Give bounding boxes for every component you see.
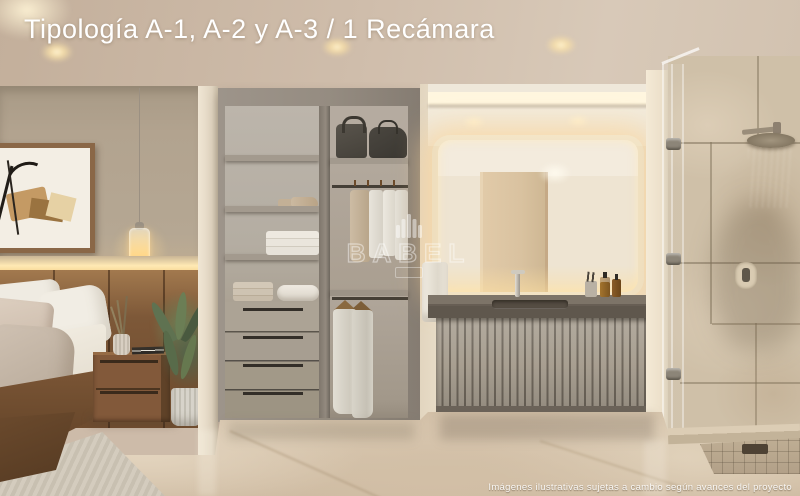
pillar (198, 86, 218, 458)
babel-watermark: BABEL (344, 214, 474, 274)
bath-spotlight-1 (462, 115, 486, 129)
shower-valve-lever (742, 268, 750, 282)
faucet (515, 273, 520, 297)
water-mist (748, 148, 792, 208)
soap-bottle-2 (612, 279, 621, 297)
shower-drain (742, 444, 768, 454)
sink-basin (492, 300, 568, 309)
disclaimer-text: Imágenes ilustrativas sujetas a cambio s… (488, 482, 792, 493)
hanging-robe-white-2 (352, 310, 373, 418)
towel-stack (266, 231, 319, 255)
closet-shelf-1 (225, 155, 319, 161)
soap-bottle-1 (600, 277, 610, 297)
vase (113, 334, 130, 355)
drawer-handle-2 (243, 336, 303, 339)
rain-shower-head (747, 133, 795, 148)
watermark-brand-text: BABEL (344, 240, 474, 266)
sandals-pair (291, 197, 318, 206)
rolled-robe (277, 285, 319, 301)
tile-grout-h4 (680, 382, 800, 384)
floor-reflection-closet (228, 422, 414, 440)
closet-center-divider (319, 106, 330, 418)
floor-reflection-pillar (198, 430, 216, 496)
glass-hinge-1 (666, 138, 681, 150)
bath-spotlight-2 (566, 114, 590, 128)
ceiling-spotlight-3 (540, 32, 582, 58)
glass-hinge-3 (666, 368, 681, 380)
glass-hinge-2 (666, 253, 681, 265)
floor-reflection-vanity (440, 414, 654, 440)
vanity-slat-front (436, 318, 658, 410)
vanity-bottom-edge (436, 406, 658, 413)
toothbrushes (586, 272, 595, 283)
hanger-hooks-upper (354, 180, 404, 186)
nightstand-handle-top (100, 360, 158, 363)
drawer-handle-4 (243, 392, 303, 395)
watermark-badge (395, 267, 423, 278)
hanging-rod-lower (332, 297, 408, 300)
toothbrush-cup (585, 281, 597, 297)
nightstand-drawer-seam (96, 388, 160, 390)
faucet-spout (511, 270, 525, 274)
duffel-handle (378, 120, 398, 134)
closet-drawers (225, 302, 319, 418)
nightstand-handle-bottom (100, 391, 158, 394)
soffit-shadow-line (428, 104, 654, 108)
closet-shelf-2 (225, 206, 319, 212)
handbag-handle (342, 116, 366, 133)
drawer-handle-3 (243, 364, 303, 367)
folded-clothes-stack (233, 282, 273, 301)
page-title: Tipología A-1, A-2 y A-3 / 1 Recámara (24, 14, 495, 45)
pendant-cord (139, 88, 140, 226)
soap-bottle-1-pump (603, 272, 607, 278)
mirror-reflection-light (538, 162, 572, 184)
soap-bottle-2-pump (615, 274, 618, 280)
babel-tower-icon (392, 214, 426, 240)
drawer-handle-1 (243, 308, 303, 311)
render-canvas: BABEL Tipología A-1, A-2 y A-3 / 1 Recám… (0, 0, 800, 496)
